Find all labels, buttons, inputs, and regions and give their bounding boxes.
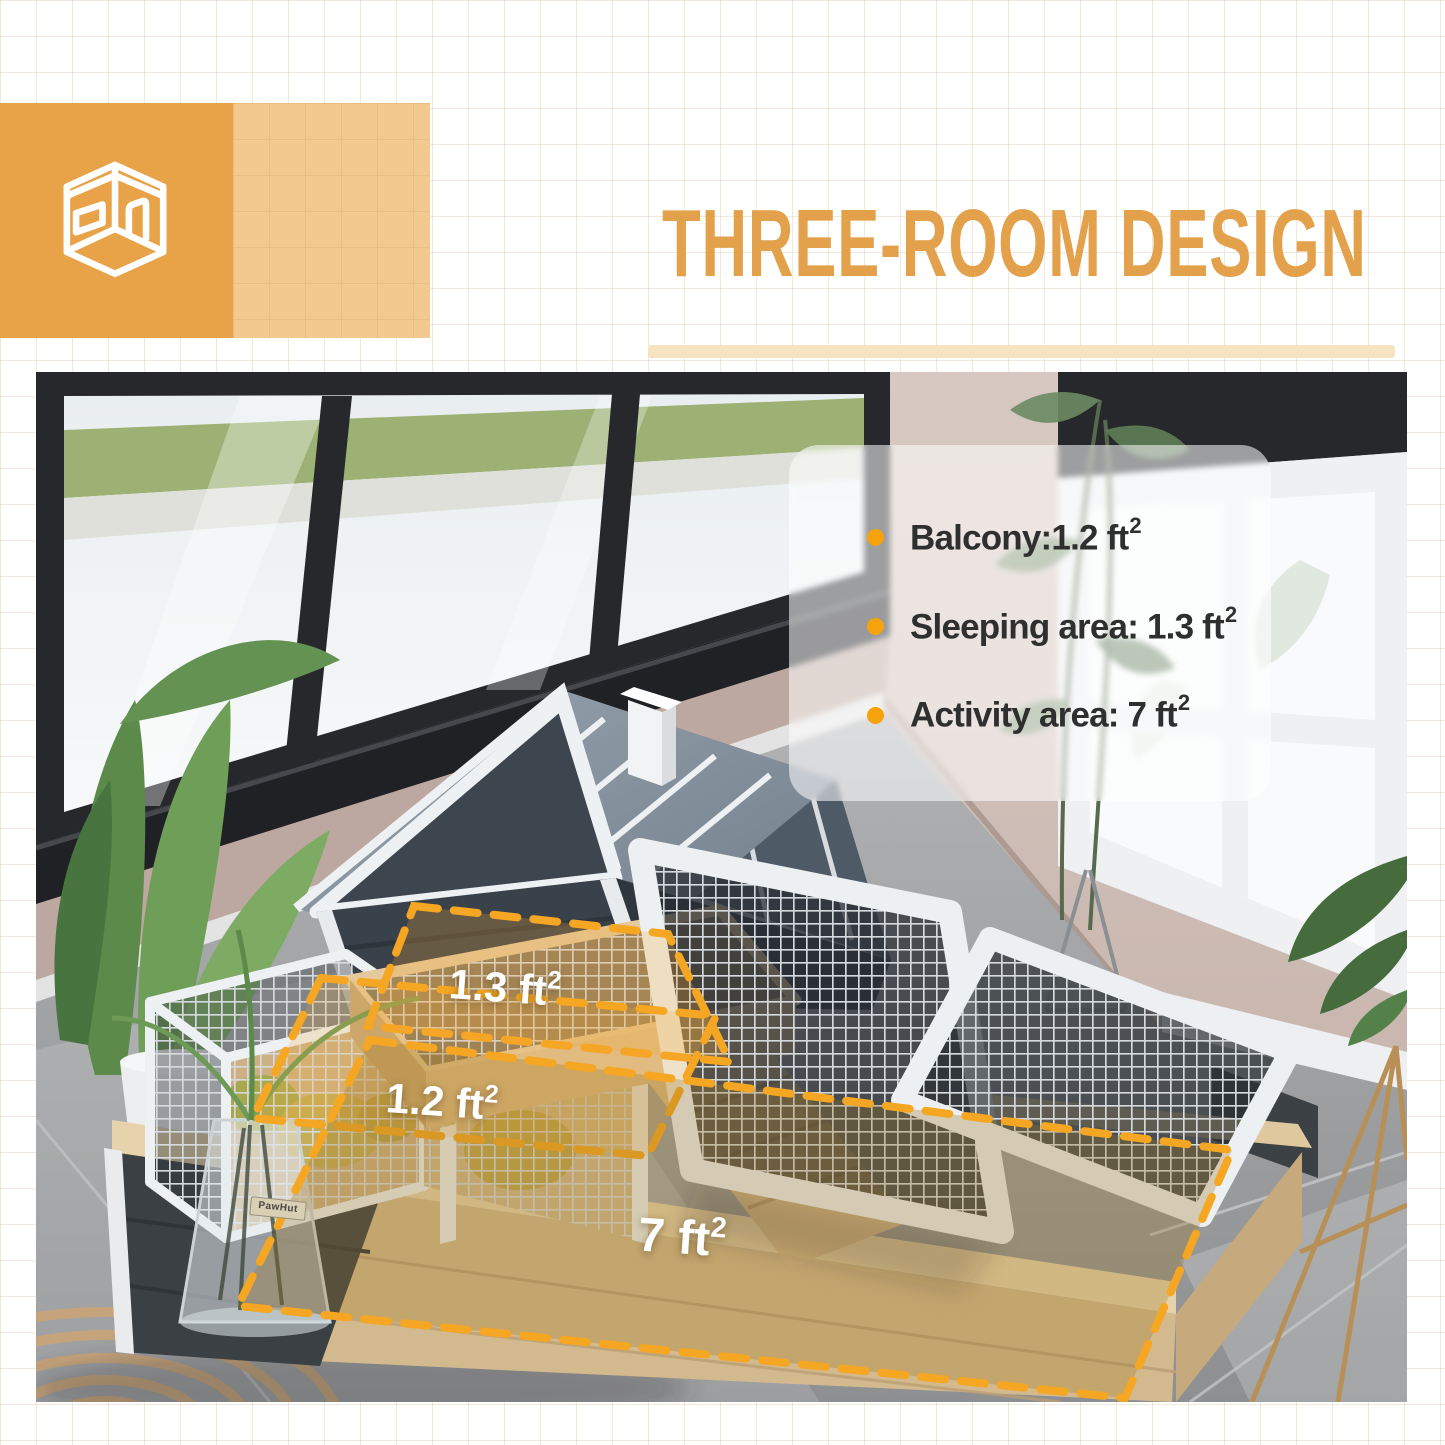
feature-card: Balcony:1.2 ft2 Sleeping area: 1.3 ft2 A…: [789, 445, 1271, 801]
feature-text-activity: Activity area: 7 ft2: [910, 694, 1189, 736]
isometric-room-icon: [51, 136, 183, 306]
feature-item-activity: Activity area: 7 ft2: [867, 694, 1271, 736]
header-accent-light: [233, 103, 430, 338]
bullet-dot: [867, 529, 884, 546]
cage-chimney: [620, 687, 682, 786]
header-accent-dark: [0, 103, 233, 338]
title-underline: [648, 345, 1395, 358]
bullet-dot: [867, 618, 884, 635]
page-title: THREE-ROOM DESIGN: [662, 196, 1367, 292]
feature-item-balcony: Balcony:1.2 ft2: [867, 517, 1271, 559]
header-accent-block: [0, 103, 430, 338]
area-label-sleeping: 1.3 ft2: [447, 960, 562, 1016]
area-label-balcony: 1.2 ft2: [384, 1074, 499, 1130]
feature-text-sleeping: Sleeping area: 1.3 ft2: [910, 606, 1236, 648]
feature-item-sleeping: Sleeping area: 1.3 ft2: [867, 606, 1271, 648]
feature-text-balcony: Balcony:1.2 ft2: [910, 517, 1141, 559]
bullet-dot: [867, 707, 884, 724]
area-label-activity: 7 ft2: [636, 1207, 728, 1268]
page-background: { "header": { "icon": "isometric-room-ic…: [0, 0, 1445, 1445]
product-photo: 1.3 ft2 1.2 ft2 7 ft2 PawHut Balcony:1.2…: [36, 372, 1407, 1402]
